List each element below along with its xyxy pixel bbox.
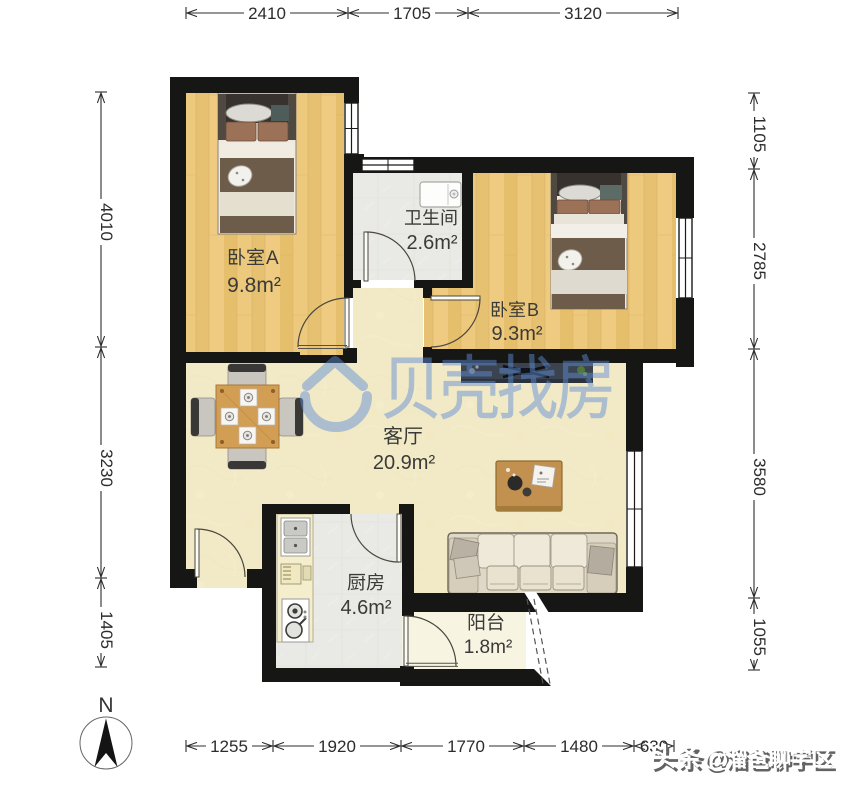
svg-text:4.6m²: 4.6m² bbox=[340, 597, 391, 619]
svg-text:3120: 3120 bbox=[564, 4, 602, 23]
svg-text:1705: 1705 bbox=[393, 4, 431, 23]
svg-text:1405: 1405 bbox=[97, 611, 116, 649]
svg-text:3580: 3580 bbox=[750, 458, 769, 496]
svg-text:2410: 2410 bbox=[248, 4, 286, 23]
svg-text:A: A bbox=[266, 248, 279, 269]
svg-text:4010: 4010 bbox=[97, 203, 116, 241]
svg-text:N: N bbox=[98, 694, 113, 717]
svg-text:1055: 1055 bbox=[750, 618, 769, 656]
svg-text:2.6m²: 2.6m² bbox=[406, 232, 457, 254]
svg-text:@: @ bbox=[703, 744, 727, 772]
svg-text:1770: 1770 bbox=[447, 737, 485, 756]
svg-text:20.9m²: 20.9m² bbox=[373, 452, 436, 474]
svg-text:9.8m²: 9.8m² bbox=[227, 274, 281, 297]
svg-text:1920: 1920 bbox=[318, 737, 356, 756]
svg-text:1255: 1255 bbox=[210, 737, 248, 756]
svg-text:1.8m²: 1.8m² bbox=[464, 637, 513, 658]
svg-text:B: B bbox=[527, 300, 539, 320]
svg-text:1105: 1105 bbox=[750, 116, 769, 153]
svg-text:9.3m²: 9.3m² bbox=[491, 323, 542, 345]
svg-text:3230: 3230 bbox=[97, 449, 116, 487]
svg-text:1480: 1480 bbox=[560, 737, 598, 756]
svg-text:2785: 2785 bbox=[750, 242, 769, 280]
